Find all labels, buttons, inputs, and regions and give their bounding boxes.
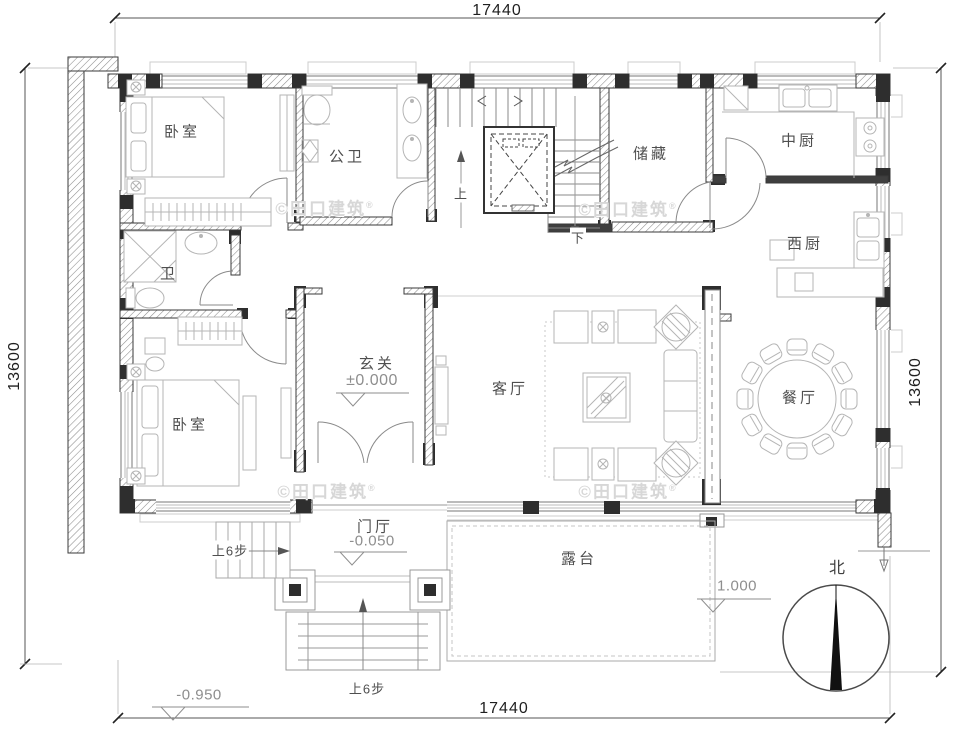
entry-pier-right (410, 570, 450, 610)
corner-armchair-top (654, 305, 698, 349)
level-site: -0.950 (176, 687, 222, 704)
watermark: ©田口建筑® (275, 195, 374, 220)
room-label-chinese-kitchen: 中厨 (781, 130, 817, 151)
watermark-text: ©田口建筑 (277, 483, 368, 502)
dimension-bottom: 17440 (479, 700, 529, 718)
watermark-registered: ® (669, 483, 678, 493)
stair-down-label: 下 (570, 228, 586, 247)
level-terrace: 1.000 (717, 578, 757, 595)
room-label-bedroom-top: 卧室 (164, 121, 200, 142)
level-foyer: -0.050 (349, 533, 395, 550)
floor-plan-drawing (0, 0, 960, 740)
side-steps-label: 上6步 (211, 541, 249, 560)
entry-double-door (318, 422, 413, 463)
room-label-storage: 储藏 (633, 143, 669, 164)
watermark-registered: ® (368, 483, 377, 493)
dimension-left: 13600 (6, 341, 24, 391)
western-kitchen-fixtures (770, 212, 884, 297)
room-label-bedroom-bottom: 卧室 (172, 414, 208, 435)
level-entry-hall: ±0.000 (346, 372, 398, 390)
north-label: 北 (829, 554, 845, 578)
bedroom-top-furniture (126, 80, 294, 226)
window-bottom-bedroom (140, 499, 300, 522)
compass-needle-icon (830, 585, 842, 690)
entry-steps (275, 570, 450, 670)
floor-plan-canvas: 17440 17440 13600 13600 卧室 公卫 储藏 中厨 西厨 卫… (0, 0, 960, 740)
room-label-living-room: 客厅 (492, 378, 528, 399)
watermark-text: ©田口建筑 (275, 200, 366, 219)
room-label-terrace: 露台 (561, 548, 597, 569)
watermark-text: ©田口建筑 (578, 201, 669, 220)
main-steps-label: 上6步 (348, 679, 386, 698)
bedroom-bottom-furniture (127, 317, 291, 486)
site-wall (68, 57, 118, 553)
watermark-registered: ® (366, 200, 375, 210)
room-label-public-bath: 公卫 (329, 146, 365, 167)
elevator (484, 127, 554, 213)
coffee-table (583, 373, 630, 422)
room-label-western-kitchen: 西厨 (787, 233, 823, 254)
watermark-text: ©田口建筑 (578, 483, 669, 502)
window-band-top (108, 76, 888, 88)
terrace-outline (447, 521, 715, 661)
watermark-registered: ® (669, 201, 678, 211)
room-label-dining-room: 餐厅 (782, 387, 818, 408)
watermark: ©田口建筑® (277, 478, 376, 503)
stair-up-label: 上 (453, 184, 469, 203)
dimension-right: 13600 (907, 357, 925, 407)
stair-treads-upper (436, 88, 556, 127)
watermark: ©田口建筑® (578, 196, 677, 221)
room-label-bath: 卫 (160, 263, 178, 284)
living-room-furniture (435, 305, 700, 485)
room-label-entry-hall: 玄关 (359, 353, 395, 374)
window-bottom-living (447, 502, 890, 520)
dimension-top: 17440 (472, 2, 522, 20)
north-compass (783, 585, 889, 691)
watermark: ©田口建筑® (578, 478, 677, 503)
